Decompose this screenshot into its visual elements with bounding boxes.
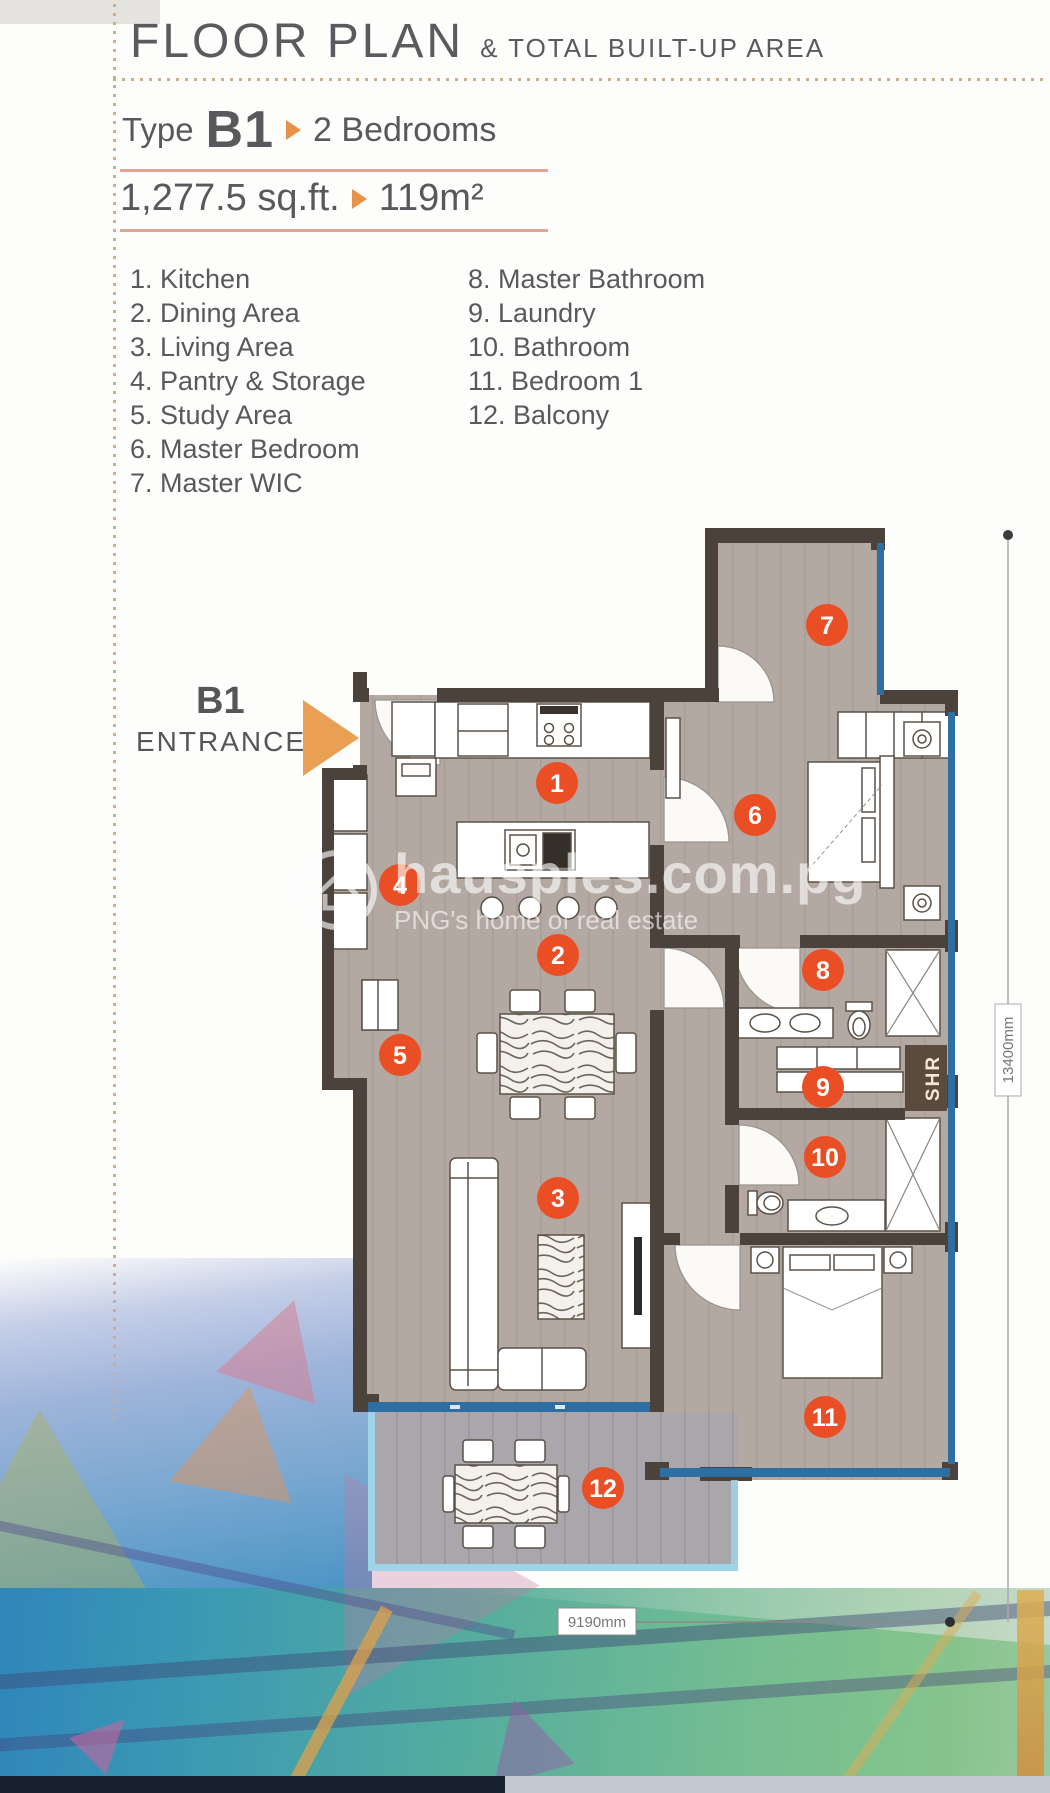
dimension-vertical: 13400mm <box>995 530 1021 1622</box>
svg-text:5: 5 <box>393 1042 407 1070</box>
legend-item: 11. Bedroom 1 <box>468 364 705 398</box>
legend-label: Laundry <box>498 298 596 328</box>
chevron-right-icon <box>286 120 301 140</box>
legend-label: Pantry & Storage <box>160 366 366 396</box>
legend-label: Master WIC <box>160 468 303 498</box>
legend-num: 5. <box>130 400 160 430</box>
dotted-guide-horizontal <box>113 78 1043 81</box>
floor-plan-page: FLOOR PLAN & TOTAL BUILT-UP AREA Type B1… <box>0 0 1050 1793</box>
floor-plan: SHR 1 2 3 4 5 6 7 8 9 10 11 12 13400mm <box>300 450 1040 1650</box>
area-imperial: 1,277.5 sq.ft. <box>120 177 340 220</box>
shr-label: SHR <box>905 1045 947 1111</box>
entrance-code: B1 <box>196 680 245 723</box>
svg-text:1: 1 <box>550 770 564 798</box>
room-marker-5: 5 <box>379 1034 421 1076</box>
legend-item: 3. Living Area <box>130 330 366 364</box>
legend-label: Balcony <box>513 400 609 430</box>
legend-item: 9. Laundry <box>468 296 705 330</box>
legend-item: 7. Master WIC <box>130 466 366 500</box>
legend-num: 6. <box>130 434 160 464</box>
svg-text:7: 7 <box>820 612 834 640</box>
room-marker-4: 4 <box>379 864 421 906</box>
legend-num: 7. <box>130 468 160 498</box>
unit-type-row: Type B1 2 Bedrooms <box>122 100 496 160</box>
legend-num: 8. <box>468 264 498 294</box>
legend-label: Living Area <box>160 332 294 362</box>
legend-item: 6. Master Bedroom <box>130 432 366 466</box>
legend-item: 12. Balcony <box>468 398 705 432</box>
legend-label: Bathroom <box>513 332 630 362</box>
legend-label: Bedroom 1 <box>511 366 643 396</box>
legend-label: Kitchen <box>160 264 250 294</box>
svg-text:2: 2 <box>551 942 565 970</box>
svg-text:8: 8 <box>816 957 830 985</box>
legend-num: 1. <box>130 264 160 294</box>
svg-text:4: 4 <box>393 872 407 900</box>
legend-num: 11. <box>468 366 511 396</box>
legend-num: 9. <box>468 298 498 328</box>
entrance-arrow-icon <box>303 700 359 776</box>
room-marker-7: 7 <box>806 604 848 646</box>
room-marker-1: 1 <box>536 762 578 804</box>
shr-text: SHR <box>923 1055 944 1101</box>
page-header: FLOOR PLAN & TOTAL BUILT-UP AREA <box>130 14 825 69</box>
legend-num: 12. <box>468 400 513 430</box>
legend-label: Master Bedroom <box>160 434 360 464</box>
dimension-horizontal: 9190mm <box>558 1608 955 1635</box>
room-marker-2: 2 <box>537 934 579 976</box>
divider-rule <box>120 229 548 232</box>
svg-text:10: 10 <box>811 1144 839 1172</box>
legend-item: 4. Pantry & Storage <box>130 364 366 398</box>
svg-text:11: 11 <box>812 1404 839 1432</box>
unit-type-code: B1 <box>206 100 274 160</box>
legend-item: 10. Bathroom <box>468 330 705 364</box>
bottom-strip-navy <box>0 1776 505 1793</box>
room-marker-3: 3 <box>537 1177 579 1219</box>
page-title: FLOOR PLAN <box>130 14 464 69</box>
svg-text:9: 9 <box>816 1074 830 1102</box>
svg-text:12: 12 <box>589 1475 617 1503</box>
legend-num: 3. <box>130 332 160 362</box>
svg-text:6: 6 <box>748 802 762 830</box>
divider-rule <box>120 169 548 172</box>
room-marker-9: 9 <box>802 1066 844 1108</box>
legend-item: 1. Kitchen <box>130 262 366 296</box>
art-triangle-orange <box>170 1375 311 1503</box>
legend-label: Study Area <box>160 400 292 430</box>
dotted-guide-vertical <box>113 4 116 1424</box>
dimension-height-label: 13400mm <box>1000 1017 1017 1084</box>
legend-item: 5. Study Area <box>130 398 366 432</box>
chevron-right-icon <box>352 189 367 209</box>
area-metric: 119m² <box>379 177 484 220</box>
legend-num: 4. <box>130 366 160 396</box>
legend-num: 10. <box>468 332 513 362</box>
page-subtitle: & TOTAL BUILT-UP AREA <box>480 33 825 64</box>
legend-num: 2. <box>130 298 160 328</box>
legend-item: 8. Master Bathroom <box>468 262 705 296</box>
legend-column-1: 1. Kitchen 2. Dining Area 3. Living Area… <box>130 262 366 500</box>
room-marker-6: 6 <box>734 794 776 836</box>
bottom-strip-gray <box>505 1776 1050 1793</box>
room-marker-11: 11 <box>804 1396 846 1438</box>
room-marker-12: 12 <box>582 1467 624 1509</box>
unit-type-label: Type <box>122 111 194 149</box>
legend-item: 2. Dining Area <box>130 296 366 330</box>
legend-column-2: 8. Master Bathroom 9. Laundry 10. Bathro… <box>468 262 705 432</box>
svg-text:3: 3 <box>551 1185 565 1213</box>
legend-label: Dining Area <box>160 298 300 328</box>
legend-label: Master Bathroom <box>498 264 705 294</box>
room-marker-10: 10 <box>804 1136 846 1178</box>
entrance-label: ENTRANCE <box>136 726 306 758</box>
dimension-width-label: 9190mm <box>568 1614 626 1631</box>
unit-bedrooms: 2 Bedrooms <box>313 111 496 150</box>
room-marker-8: 8 <box>802 949 844 991</box>
unit-area-row: 1,277.5 sq.ft. 119m² <box>120 177 484 220</box>
